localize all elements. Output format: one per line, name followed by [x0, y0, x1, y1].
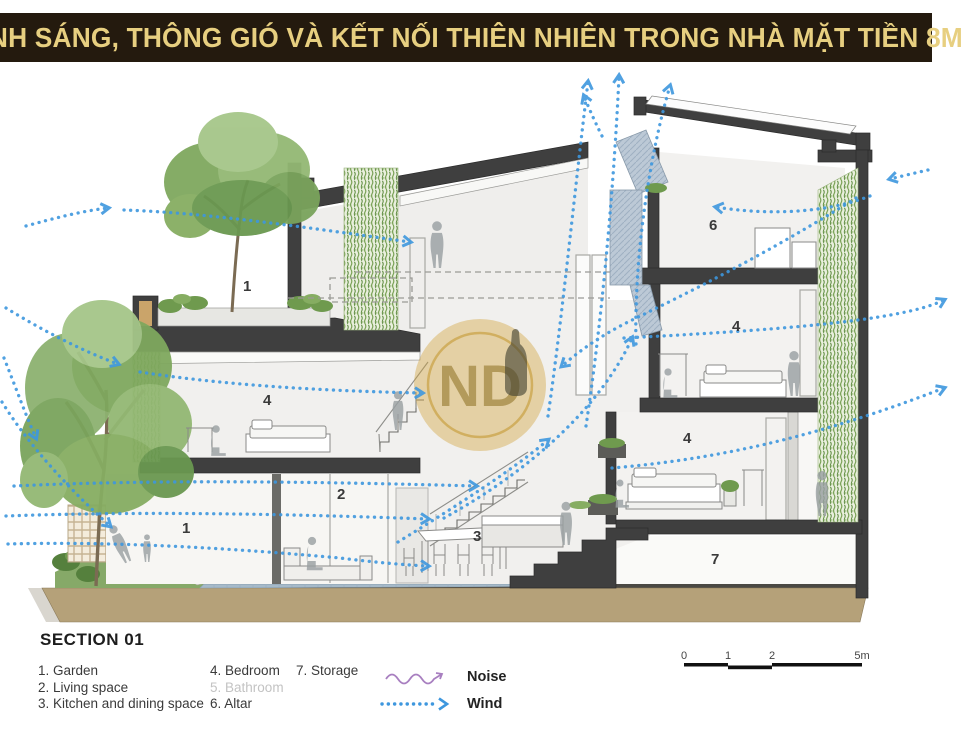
noise-legend: Noise	[383, 668, 507, 686]
legend-column-3: 7. Storage	[296, 663, 358, 680]
scale-0: 0	[681, 650, 687, 662]
wind-legend: Wind	[378, 696, 502, 712]
label-altar: 6	[709, 217, 717, 234]
partition-wall	[788, 412, 798, 522]
label-bedroom-left: 4	[263, 392, 272, 409]
legend-item-5: 5. Bathroom	[210, 680, 284, 697]
earth-ground	[28, 583, 868, 622]
label-kitchen: 3	[473, 528, 481, 545]
plant	[721, 480, 739, 492]
wind-label: Wind	[467, 696, 502, 712]
label-garden-roof: 1	[243, 278, 251, 295]
legend-item-6: 6. Altar	[210, 696, 284, 713]
legend-item-7: 7. Storage	[296, 663, 358, 680]
section-drawing: ND 1 1 2 3 4 4 4 6 7	[0, 0, 975, 750]
watermark-logo: ND	[414, 319, 546, 451]
noise-wave-icon	[383, 668, 453, 686]
legend-column-1: 1. Garden 2. Living space 3. Kitchen and…	[38, 663, 204, 713]
legend-item-3: 3. Kitchen and dining space	[38, 696, 204, 713]
legend-item-4: 4. Bedroom	[210, 663, 284, 680]
label-bedroom-mid: 4	[683, 430, 692, 447]
noise-label: Noise	[467, 669, 507, 685]
page-title: ÁNH SÁNG, THÔNG GIÓ VÀ KẾT NỐI THIÊN NHI…	[0, 22, 963, 54]
legend-item-2: 2. Living space	[38, 680, 204, 697]
infographic-page: { "title": "ÁNH SÁNG, THÔNG GIÓ VÀ KẾT N…	[0, 0, 975, 750]
label-storage: 7	[711, 551, 719, 568]
legend-item-1: 1. Garden	[38, 663, 204, 680]
door-frame	[272, 474, 281, 584]
scale-2: 2	[769, 650, 775, 662]
wind-arrow-icon	[378, 696, 453, 712]
label-living: 2	[337, 486, 345, 503]
scale-5m: 5m	[854, 650, 869, 662]
scale-1: 1	[725, 650, 731, 662]
title-banner: ÁNH SÁNG, THÔNG GIÓ VÀ KẾT NỐI THIÊN NHI…	[0, 13, 932, 62]
section-heading: SECTION 01	[40, 630, 144, 650]
label-garden: 1	[182, 520, 190, 537]
scale-bar: 0 1 2 5m	[672, 648, 877, 683]
legend-column-2: 4. Bedroom 5. Bathroom 6. Altar	[210, 663, 284, 713]
label-bedroom-top: 4	[732, 318, 741, 335]
